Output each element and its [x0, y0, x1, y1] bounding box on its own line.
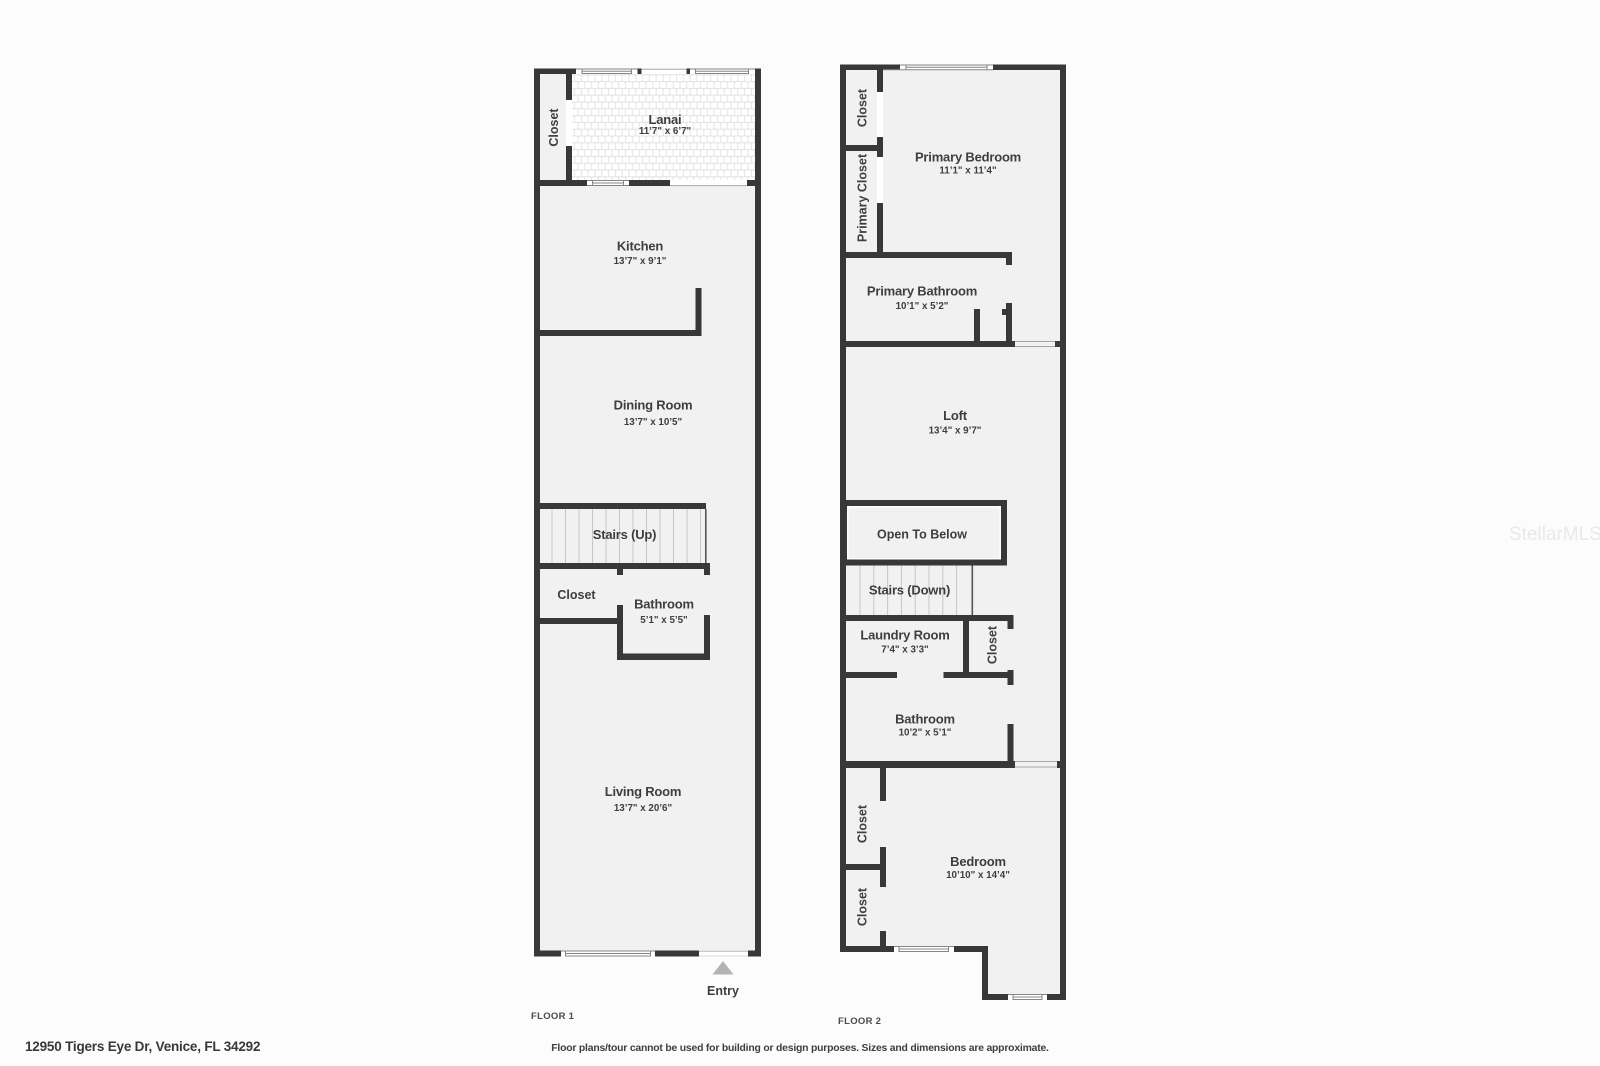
- svg-text:10’10" x 14’4": 10’10" x 14’4": [946, 870, 1010, 881]
- svg-text:Dining Room: Dining Room: [614, 398, 693, 413]
- svg-text:Bathroom: Bathroom: [634, 597, 694, 612]
- svg-text:Entry: Entry: [707, 984, 739, 998]
- svg-text:Laundry Room: Laundry Room: [860, 628, 949, 643]
- svg-text:5’1" x 5’5": 5’1" x 5’5": [640, 615, 687, 626]
- svg-text:11’1" x 11’4": 11’1" x 11’4": [939, 166, 996, 177]
- svg-text:Living Room: Living Room: [605, 784, 682, 799]
- svg-text:10’1" x 5’2": 10’1" x 5’2": [896, 301, 949, 312]
- svg-text:13’7" x 10’5": 13’7" x 10’5": [624, 417, 682, 428]
- svg-text:FLOOR 2: FLOOR 2: [838, 1016, 881, 1027]
- svg-text:13’4" x 9’7": 13’4" x 9’7": [929, 426, 982, 437]
- svg-text:FLOOR 1: FLOOR 1: [531, 1011, 575, 1022]
- svg-text:StellarMLS: StellarMLS: [1509, 524, 1600, 545]
- svg-text:Floor plans/tour cannot be use: Floor plans/tour cannot be used for buil…: [551, 1043, 1049, 1054]
- svg-text:Bathroom: Bathroom: [895, 712, 955, 727]
- svg-text:11’7" x 6’7": 11’7" x 6’7": [639, 126, 691, 137]
- svg-text:Primary Bedroom: Primary Bedroom: [915, 150, 1021, 165]
- svg-text:Kitchen: Kitchen: [617, 239, 664, 254]
- svg-text:Closet: Closet: [985, 625, 999, 664]
- svg-text:13’7" x 9’1": 13’7" x 9’1": [614, 256, 667, 267]
- svg-text:Closet: Closet: [856, 887, 870, 926]
- svg-text:13’7" x 20’6": 13’7" x 20’6": [614, 803, 672, 814]
- svg-text:Closet: Closet: [856, 804, 870, 843]
- svg-text:12950 Tigers Eye Dr, Venice, F: 12950 Tigers Eye Dr, Venice, FL 34292: [25, 1039, 260, 1054]
- svg-text:Primary Bathroom: Primary Bathroom: [867, 284, 977, 299]
- svg-text:Primary Closet: Primary Closet: [856, 153, 870, 242]
- svg-text:Stairs (Up): Stairs (Up): [593, 527, 657, 542]
- svg-text:Lanai: Lanai: [649, 112, 682, 127]
- svg-text:Closet: Closet: [547, 108, 561, 147]
- svg-text:Bedroom: Bedroom: [950, 854, 1006, 869]
- svg-text:Open To Below: Open To Below: [877, 528, 967, 542]
- svg-text:Stairs (Down): Stairs (Down): [869, 583, 950, 598]
- svg-text:Closet: Closet: [856, 88, 870, 127]
- svg-text:7’4" x 3’3": 7’4" x 3’3": [881, 645, 928, 656]
- svg-text:Closet: Closet: [557, 588, 596, 602]
- svg-text:10’2" x 5’1": 10’2" x 5’1": [899, 728, 952, 739]
- svg-text:Loft: Loft: [943, 408, 968, 423]
